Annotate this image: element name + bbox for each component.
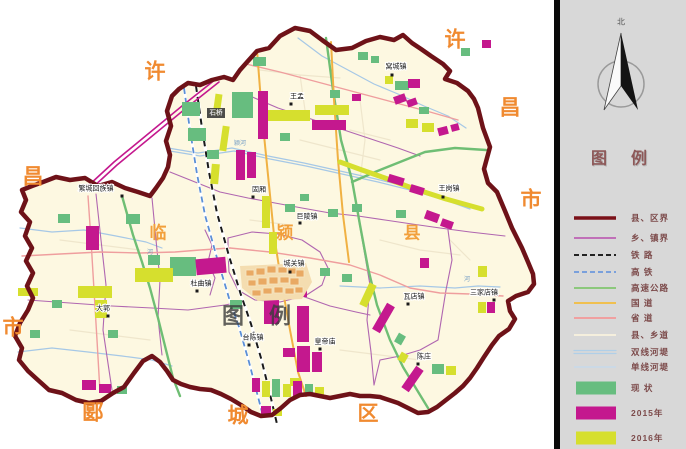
urban-block [295,287,303,293]
town-label: 王孟 [290,92,304,101]
town-label: 城关镇 [284,259,305,268]
neighbor-region-label: 市 [3,316,24,340]
neighbor-region-label: 昌 [23,166,44,189]
town-label: 三家店镇 [470,288,498,297]
legend-label: 县、乡道 [631,330,669,340]
patch-2015 [297,346,310,372]
neighbor-region-label: 许 [445,28,466,52]
town-label: 巨陵镇 [297,212,318,221]
urban-block [278,267,287,273]
urban-block [290,278,299,285]
urban-block [296,270,304,277]
status-patch [342,274,352,282]
patch-2015 [297,306,309,342]
urban-block [274,287,283,293]
patch-2016 [385,76,393,84]
county-name-char: 颍 [277,223,294,243]
town-marker [493,299,496,302]
urban-block [248,280,256,286]
status-patch [280,133,290,141]
panel-divider [554,0,560,449]
town-label: 窝城镇 [386,62,407,71]
status-patch [419,107,429,114]
map-viewer: 石桥图例繁城回族镇窝城镇王孟巨陵镇王岗镇固厢城关镇杜曲镇大郭台陈镇皇帝庙陈庄瓦店… [0,0,686,449]
legend-swatch [576,407,616,420]
patch-2015 [482,40,491,48]
town-marker [248,344,251,347]
status-patch [285,204,295,212]
town-marker [391,74,394,77]
urban-block [285,288,294,294]
patch-2016 [135,268,173,282]
patch-2015 [82,380,96,390]
status-patch [330,90,340,98]
patch-2015 [283,348,295,357]
legend-swatch [576,382,616,395]
north-label: 北 [617,18,625,27]
patch-2016 [446,366,456,375]
status-patch [395,81,409,90]
urban-block [258,278,267,285]
town-marker [407,303,410,306]
patch-2015 [247,152,256,178]
town-label: 瓦店镇 [404,292,425,301]
legend-label: 县、区界 [631,213,669,223]
status-patch [358,52,368,60]
patch-2016 [478,302,486,313]
status-patch [232,92,253,118]
legend-label: 双线河堤 [631,347,669,357]
status-patch [52,300,62,308]
town-label: 大郭 [96,304,110,313]
river-label: 颍河 [234,139,246,147]
urban-block [252,290,261,296]
status-patch [352,204,362,212]
town-marker [252,196,255,199]
status-patch [328,209,338,217]
town-label: 固厢 [252,186,266,194]
status-patch [182,102,200,116]
status-patch [396,210,406,218]
town-marker [196,290,199,293]
patch-2015 [86,226,99,250]
town-label: 台陈镇 [243,333,264,342]
town-marker [299,222,302,225]
status-patch [30,330,40,338]
town-marker [417,363,420,366]
county-name-char: 临 [150,223,167,243]
legend-label: 高 铁 [631,267,653,277]
patch-2015 [261,406,271,414]
urban-block [246,270,254,276]
patch-2016 [478,266,487,277]
patch-2015 [258,91,268,139]
legend-label: 2015年 [631,408,663,418]
neighbor-region-label: 区 [358,403,379,426]
patch-2015 [252,378,260,392]
legend-title-char: 例 [631,149,647,168]
legend-label: 高速公路 [631,283,669,293]
patch-2015 [312,352,322,372]
patch-2015 [236,150,245,180]
patch-2016 [406,119,418,128]
status-patch [188,128,206,141]
status-patch [253,57,266,66]
urban-block [263,288,272,294]
status-patch [126,214,140,224]
legend-title-char: 图 [591,150,607,168]
patch-2015 [195,257,226,276]
town-label: 陈庄 [417,352,431,361]
town-marker [319,348,322,351]
patch-2016 [283,384,291,397]
town-marker [107,315,110,318]
status-patch [170,257,196,276]
town-marker [442,196,445,199]
town-label: 杜曲镇 [191,279,212,288]
patch-2016 [268,110,310,121]
river-label: 河 [147,248,153,256]
legend-label: 铁 路 [631,250,653,260]
patch-2015 [420,258,429,268]
status-patch [320,268,330,276]
legend-swatch [576,432,616,445]
legend-label: 乡、镇界 [631,233,669,243]
town-label: 皇帝庙 [315,337,336,346]
legend-label: 2016年 [631,433,663,443]
legend-label: 国 道 [631,298,653,308]
status-patch [148,255,160,265]
neighbor-region-label: 市 [521,188,542,212]
patch-2016 [315,105,349,115]
watermark-char: 例 [269,304,291,329]
status-patch [371,56,379,63]
neighbor-region-label: 许 [145,60,166,84]
county-name-char: 县 [404,224,421,243]
legend-label: 省 道 [630,313,653,323]
town-label: 王岗镇 [439,184,460,193]
patch-2015 [99,384,111,393]
legend-label: 现 状 [631,383,653,393]
patch-2015 [487,302,495,313]
neighbor-region-label: 昌 [500,97,521,120]
urban-block [269,277,278,284]
urban-block [280,277,289,283]
neighbor-region-label: 郾 [83,402,104,425]
patch-2016 [262,381,270,397]
town-marker [290,103,293,106]
patch-2015 [352,94,361,101]
status-patch [272,379,280,397]
patch-2016 [422,123,434,132]
patch-2016 [262,196,270,228]
urban-block [256,268,265,275]
status-patch [207,150,219,159]
town-label-dark: 石桥 [209,108,224,117]
legend-label: 单线河堤 [631,362,669,372]
status-patch [108,330,118,338]
urban-block [267,266,276,273]
watermark-char: 图 [222,304,244,329]
town-marker [289,271,292,274]
patch-2015 [408,79,420,88]
patch-2015 [312,120,346,130]
neighbor-region-label: 城 [228,404,249,428]
river-label: 河 [464,275,470,283]
status-patch [300,194,309,201]
map-canvas: 石桥图例繁城回族镇窝城镇王孟巨陵镇王岗镇固厢城关镇杜曲镇大郭台陈镇皇帝庙陈庄瓦店… [0,0,686,449]
town-label: 繁城回族镇 [79,184,114,193]
status-patch [432,364,444,374]
town-marker [121,195,124,198]
patch-2016 [78,286,112,298]
status-patch [58,214,70,223]
